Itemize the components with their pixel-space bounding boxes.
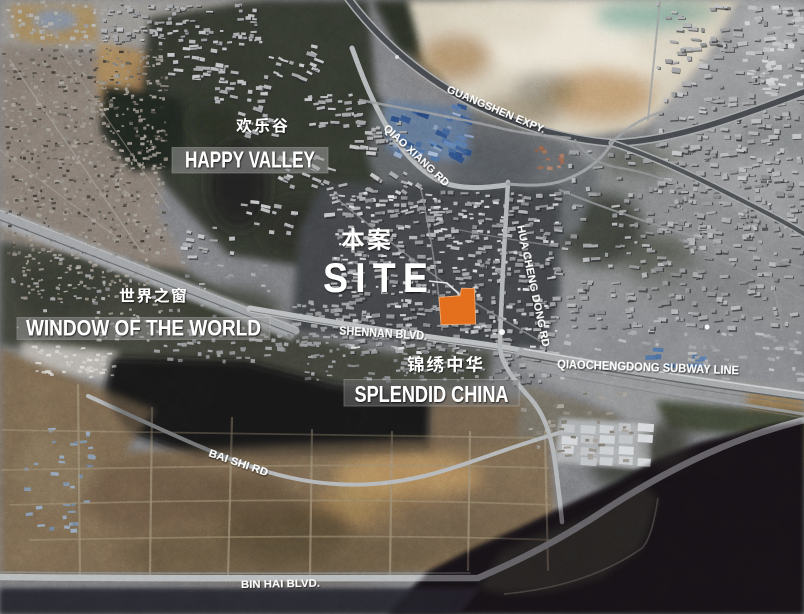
svg-text:SPLENDID CHINA: SPLENDID CHINA [355, 381, 509, 407]
svg-text:HAPPY VALLEY: HAPPY VALLEY [185, 147, 315, 173]
svg-text:WINDOW OF THE WORLD: WINDOW OF THE WORLD [26, 316, 261, 341]
svg-text:BIN HAI BLVD.: BIN HAI BLVD. [241, 578, 320, 591]
svg-text:SITE: SITE [323, 254, 435, 301]
